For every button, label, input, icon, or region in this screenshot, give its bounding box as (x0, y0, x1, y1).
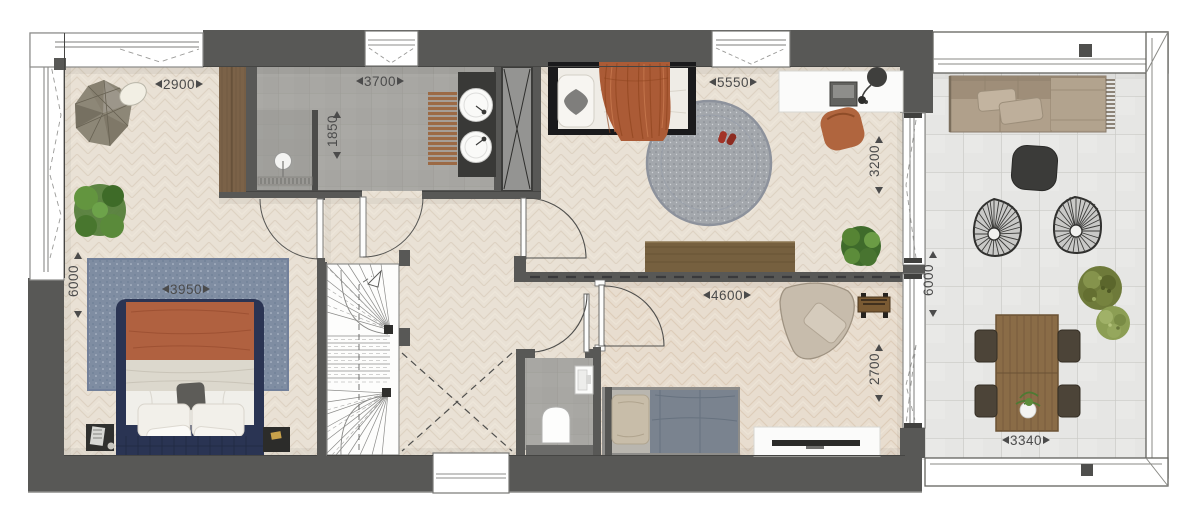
svg-text:2700: 2700 (867, 353, 882, 385)
svg-text:3200: 3200 (867, 145, 882, 177)
svg-text:5550: 5550 (717, 75, 749, 90)
svg-text:4600: 4600 (711, 288, 743, 303)
svg-text:6000: 6000 (66, 265, 81, 297)
svg-text:6000: 6000 (921, 264, 936, 296)
svg-text:3950: 3950 (170, 282, 202, 297)
svg-text:3340: 3340 (1010, 433, 1042, 448)
svg-text:3700: 3700 (364, 74, 396, 89)
svg-text:2900: 2900 (163, 77, 195, 92)
svg-text:1850: 1850 (325, 115, 340, 147)
